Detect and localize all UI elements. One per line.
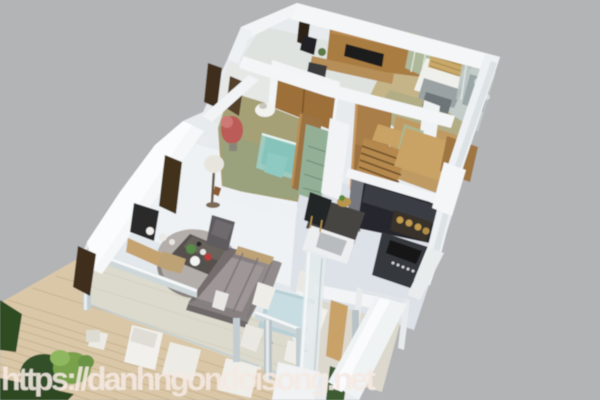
svg-text:https://danhngondoisong.net: https://danhngondoisong.net xyxy=(1,361,376,397)
